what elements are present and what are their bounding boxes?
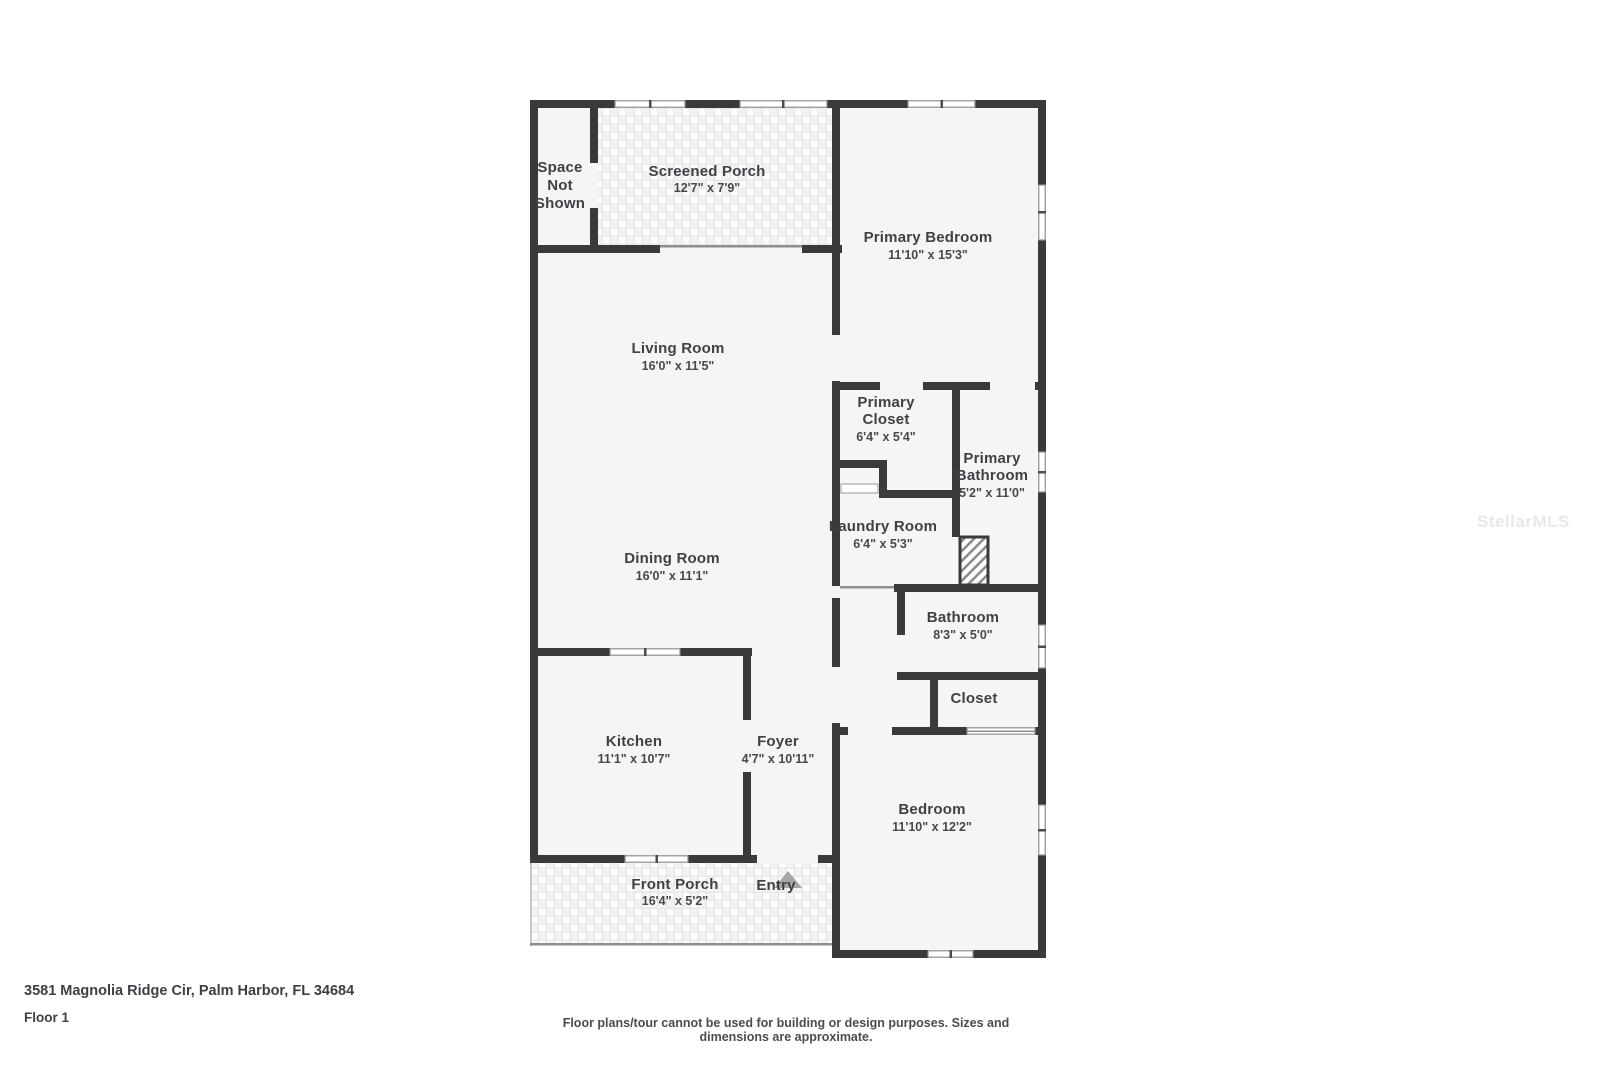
- primary-bedroom-dims: 11'10" x 15'3": [888, 248, 968, 262]
- floor-plan-page: Space Not Shown Screened Porch 12'7" x 7…: [0, 0, 1600, 1066]
- primary-bedroom-label: Primary Bedroom: [864, 229, 993, 246]
- window: [908, 100, 975, 108]
- primary-bathroom-label: Bathroom: [956, 467, 1028, 484]
- window: [1038, 452, 1046, 492]
- primary-closet-label: Primary: [857, 394, 915, 411]
- bedroom-label: Bedroom: [898, 801, 965, 818]
- living-room-dims: 16'0" x 11'5": [642, 359, 715, 373]
- closet-label: Closet: [950, 690, 997, 707]
- bathroom-dims: 8'3" x 5'0": [933, 628, 993, 642]
- water-heater-hatch: [960, 537, 988, 585]
- entry-label: Entry: [756, 877, 796, 894]
- property-address: 3581 Magnolia Ridge Cir, Palm Harbor, FL…: [24, 983, 354, 999]
- bedroom-dims: 11'10" x 12'2": [892, 820, 972, 834]
- kitchen-dims: 11'1" x 10'7": [598, 752, 671, 766]
- niche-bifold-door: [841, 484, 878, 493]
- floor-plan: Space Not Shown Screened Porch 12'7" x 7…: [530, 100, 1046, 960]
- front-porch-dims: 16'4" x 5'2": [642, 894, 709, 908]
- primary-bathroom-label: Primary: [963, 450, 1021, 467]
- window: [1038, 805, 1046, 855]
- closet-sliding-doors: [967, 728, 1035, 734]
- window: [1038, 185, 1046, 240]
- window: [928, 950, 973, 958]
- window: [615, 100, 685, 108]
- living-room-label: Living Room: [631, 340, 724, 357]
- primary-bathroom-dims: 5'2" x 11'0": [959, 486, 1025, 500]
- foyer-dims: 4'7" x 10'11": [742, 752, 815, 766]
- disclaimer-text: Floor plans/tour cannot be used for buil…: [530, 1016, 1042, 1044]
- front-porch-label: Front Porch: [631, 876, 718, 893]
- laundry-room-dims: 6'4" x 5'3": [853, 537, 913, 551]
- window: [1038, 625, 1046, 668]
- space-not-shown-label: Not: [547, 177, 573, 194]
- window: [610, 648, 680, 656]
- porch-sliding-door-line: [660, 245, 802, 248]
- screened-porch-label: Screened Porch: [648, 163, 765, 180]
- space-not-shown-label: Shown: [535, 195, 585, 212]
- bathroom-label: Bathroom: [927, 609, 999, 626]
- primary-closet-label: Closet: [862, 411, 909, 428]
- stellar-mls-watermark: StellarMLS: [1477, 512, 1570, 532]
- primary-closet-dims: 6'4" x 5'4": [856, 430, 916, 444]
- dining-room-dims: 16'0" x 11'1": [636, 569, 709, 583]
- laundry-room-label: Laundry Room: [829, 518, 937, 535]
- floor-number: Floor 1: [24, 1010, 69, 1025]
- space-not-shown-label: Space: [537, 159, 582, 176]
- screened-porch-dims: 12'7" x 7'9": [674, 181, 741, 195]
- dining-room-label: Dining Room: [624, 550, 720, 567]
- kitchen-label: Kitchen: [606, 733, 662, 750]
- foyer-label: Foyer: [757, 733, 799, 750]
- window: [625, 855, 688, 863]
- hallway-opening-line: [840, 586, 894, 589]
- window: [740, 100, 827, 108]
